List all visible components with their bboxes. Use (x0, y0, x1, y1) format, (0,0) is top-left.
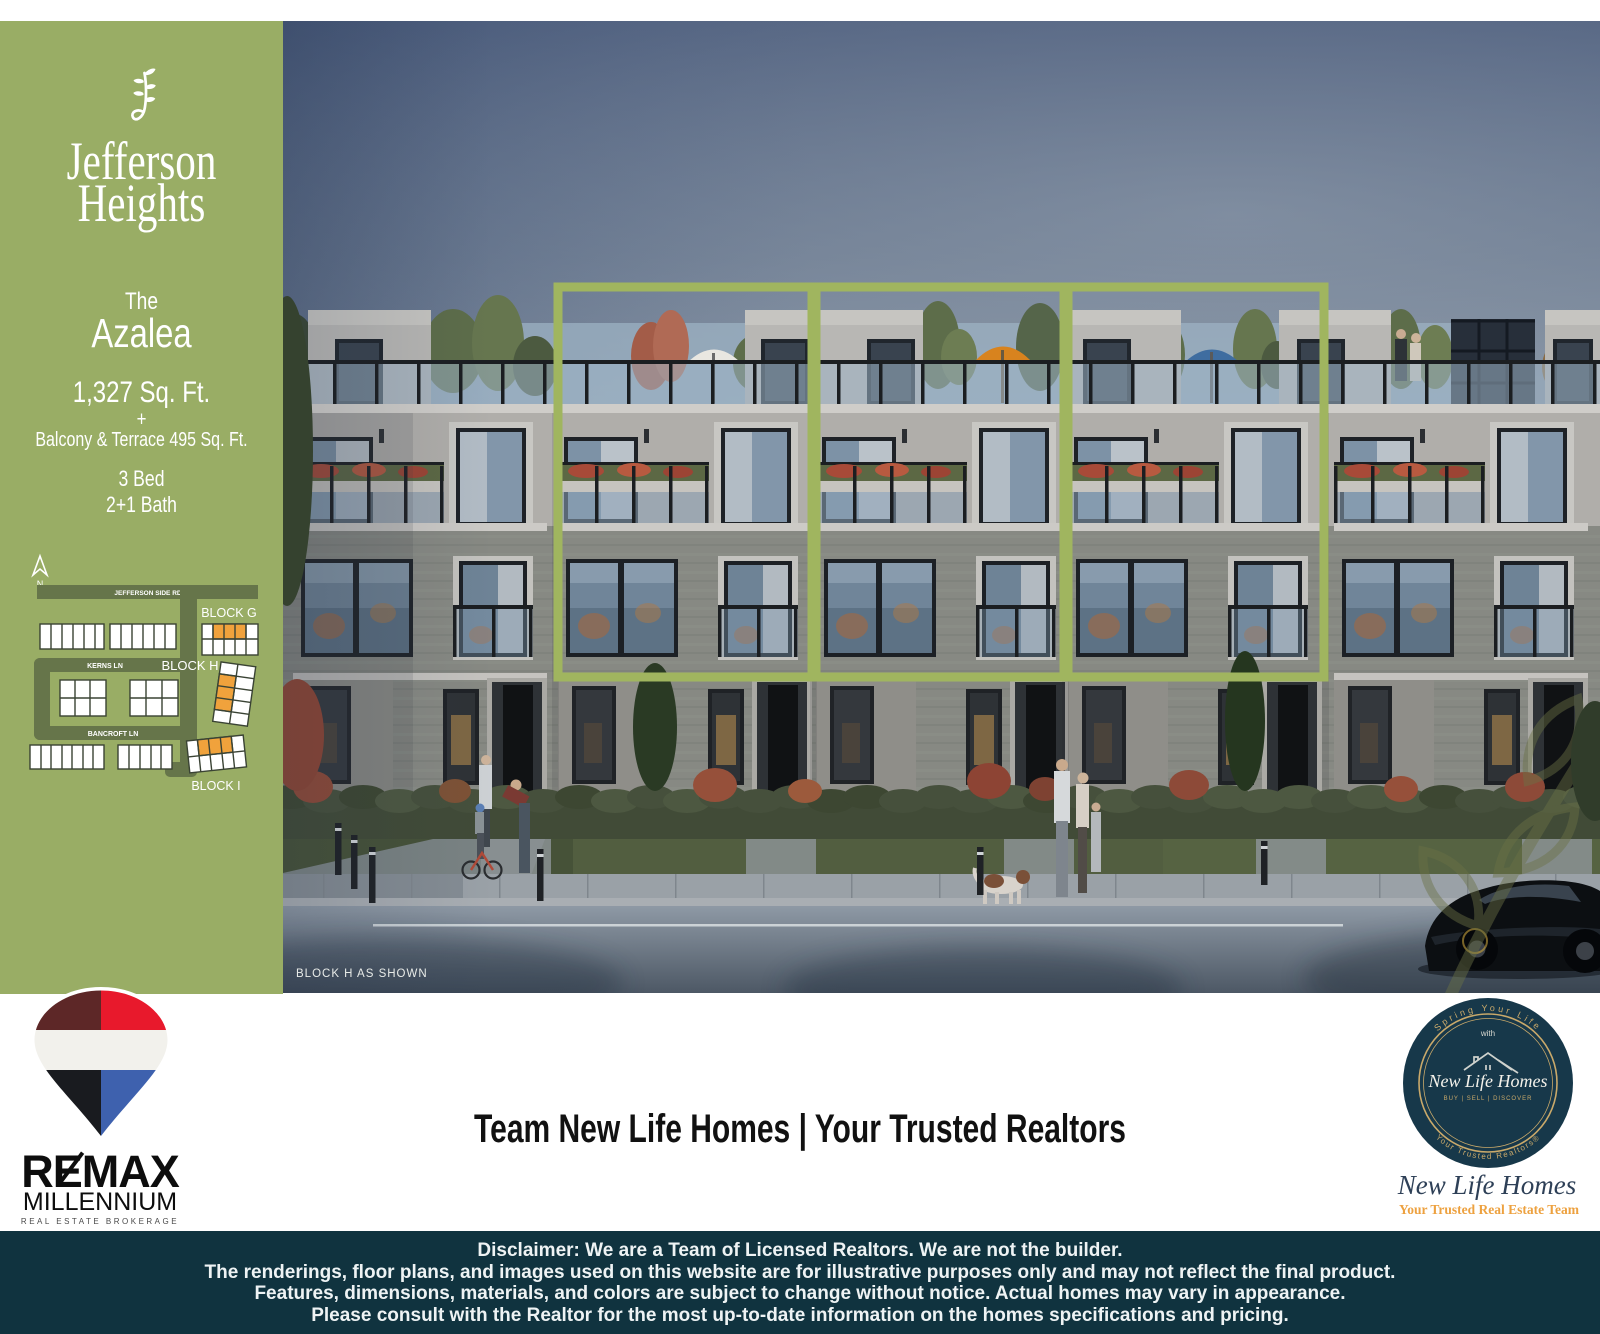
svg-text:BLOCK G: BLOCK G (201, 606, 257, 620)
svg-text:KERNS LN: KERNS LN (87, 663, 123, 670)
svg-text:BLOCK H: BLOCK H (161, 658, 218, 673)
svg-text:with: with (1480, 1029, 1495, 1038)
svg-text:BLOCK I: BLOCK I (191, 779, 240, 793)
svg-text:BUY | SELL | DISCOVER: BUY | SELL | DISCOVER (1444, 1096, 1533, 1102)
svg-text:JEFFERSON SIDE RD: JEFFERSON SIDE RD (114, 590, 181, 597)
svg-text:BLOCK H AS SHOWN: BLOCK H AS SHOWN (296, 968, 428, 980)
svg-text:New Life Homes: New Life Homes (1428, 1071, 1548, 1091)
svg-text:BANCROFT LN: BANCROFT LN (88, 731, 139, 738)
